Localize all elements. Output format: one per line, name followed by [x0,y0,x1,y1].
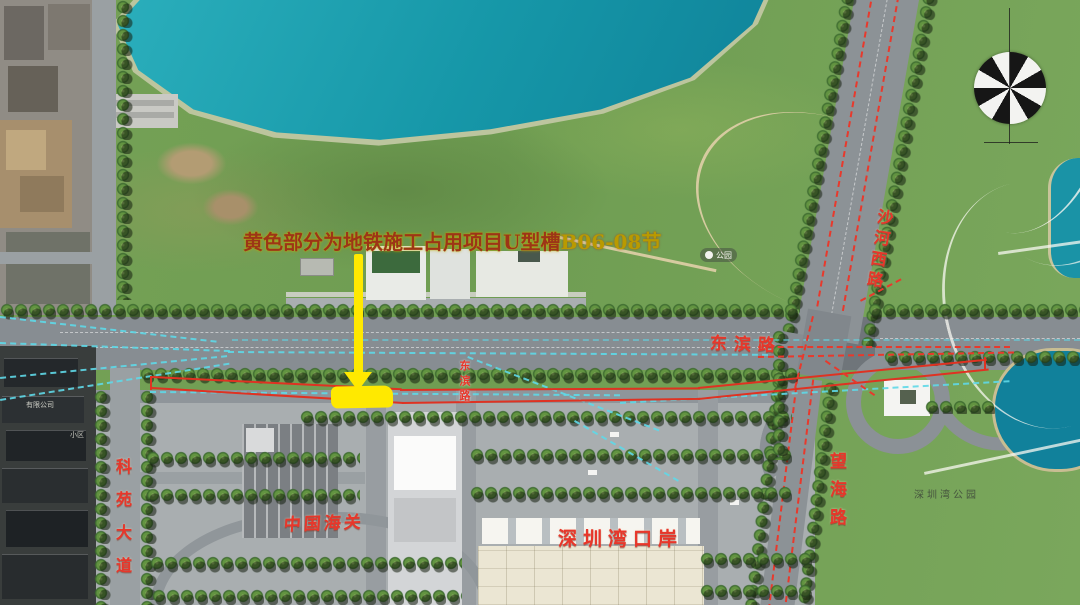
compass-north-icon [974,52,1046,124]
tree-row [300,410,792,427]
park-poi-icon [705,251,713,259]
tree-row [470,486,792,503]
dongbin-road-label: 东滨路 [710,329,783,356]
satellite-map-canvas: 有限公司 小区 [0,0,1080,605]
poi-label-estate: 小区 [70,430,84,440]
tree-column [116,0,133,300]
lane-marking [60,332,770,333]
keyuan-avenue-label: 科苑大道 [110,458,134,605]
median-road-label: 东滨路 [456,360,472,410]
customs-annex [246,428,274,452]
shenzhen-bay-port-label: 深圳湾口岸 [558,524,683,551]
vehicle [610,432,619,437]
tree-row [868,303,1080,320]
tree-row [0,303,800,320]
building-slab [2,468,88,503]
annotation-code: B06-08节 [560,230,661,254]
construction-detail [20,176,64,212]
building-block [4,6,44,60]
loop-center-courtyard [900,390,916,404]
wanghai-road-label: 望海路 [824,452,849,556]
building-block [8,66,58,112]
park-poi-label: 公园 [716,250,732,261]
construction-detail [6,130,46,170]
tree-row [150,556,462,573]
road-segment [92,0,116,315]
annotation-text: 黄色部分为地铁施工占用项目U型槽B06-08节 [243,226,661,255]
annotation-arrow-shaft [354,254,363,376]
building-slab [2,554,88,599]
building-block [6,232,90,304]
inspection-building-wing [394,436,456,490]
tree-row [700,552,812,569]
annotation-prefix: 黄色部分为地铁施工占用项目U型槽 [243,230,560,254]
tree-column [94,390,111,605]
vehicle [588,470,597,475]
compass-base-line [984,142,1038,143]
building-block [48,4,90,50]
compass-axis-line [1009,8,1010,144]
tree-row [152,589,462,605]
park-poi-badge: 公园 [700,248,737,262]
tree-row [146,451,360,468]
construction-dashed-line [758,346,1010,348]
road-segment [0,252,92,264]
china-customs-label: 中国海关 [283,508,365,536]
inspection-building-wing [394,498,456,542]
u-trough-highlight [331,385,393,408]
tree-row [700,584,812,600]
building-slab [6,510,88,547]
tunnel-outline-red [984,357,986,369]
shenzhen-bay-park-label: 深圳湾公园 [914,486,979,501]
depot-building [430,249,470,299]
poi-label-company: 有限公司 [26,400,54,410]
shed [300,258,334,276]
tree-row [925,400,995,414]
tree-row [470,448,792,465]
tunnel-outline-red [150,376,152,390]
tree-row [146,488,360,505]
